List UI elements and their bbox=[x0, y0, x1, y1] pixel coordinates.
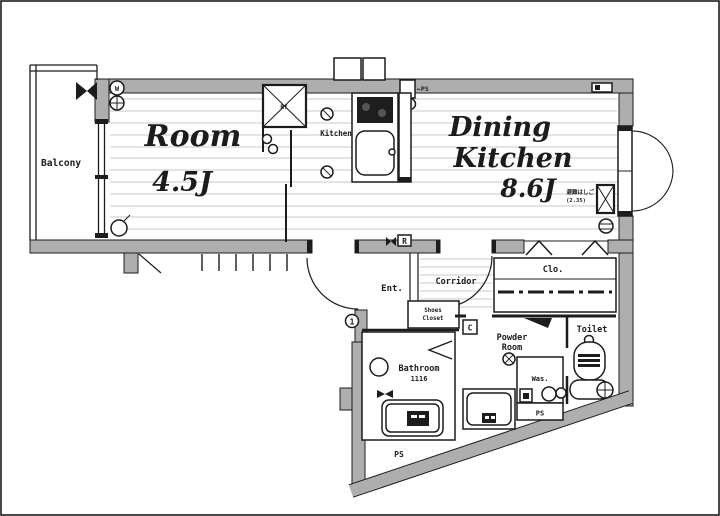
washer-label: Was. bbox=[532, 375, 549, 383]
escape-ladder-size: (2.35) bbox=[566, 198, 586, 204]
shoes-closet: Shoes Closet bbox=[408, 301, 459, 328]
dk-name-line1: Dining bbox=[448, 112, 551, 143]
left-upper-wall bbox=[95, 79, 109, 122]
entrance-label: Ent. bbox=[381, 284, 403, 294]
shower-icon bbox=[370, 358, 388, 376]
bathroom-size: 1116 bbox=[411, 375, 428, 383]
dk-size: 8.6J bbox=[499, 174, 557, 203]
bottom-wall-d bbox=[608, 240, 633, 253]
ps-top-label: ←PS bbox=[417, 85, 429, 93]
sink-icon bbox=[356, 131, 394, 175]
floor-plan: Balcony ←PS M W Rf bbox=[0, 0, 720, 516]
gas-tap-icon bbox=[269, 145, 278, 154]
outlet-icon bbox=[111, 220, 127, 236]
bathroom-label: Bathroom bbox=[399, 364, 440, 374]
c-mark: C bbox=[468, 324, 473, 333]
closet-label: Clo. bbox=[543, 265, 563, 275]
door-number: 1 bbox=[350, 318, 355, 327]
escape-ladder-label: 避難はしご bbox=[565, 188, 594, 196]
r-mark: R bbox=[402, 237, 407, 246]
toilet-label: Toilet bbox=[577, 324, 608, 335]
stove-icon bbox=[357, 97, 393, 123]
gas-tap-icon bbox=[263, 135, 272, 144]
ps-bathroom-label: PS bbox=[394, 450, 404, 459]
dk-name-line2: Kitchen bbox=[452, 143, 572, 174]
kitchen-wall-strip bbox=[399, 93, 411, 182]
right-wall-upper bbox=[619, 93, 633, 126]
gas-meter-icon bbox=[599, 219, 613, 233]
shoes-closet-line1: Shoes bbox=[424, 308, 442, 314]
fridge-label: Rf bbox=[280, 104, 288, 111]
bottom-wall-a bbox=[30, 240, 312, 253]
corridor-label: Corridor bbox=[436, 276, 477, 287]
balcony-label: Balcony bbox=[41, 158, 81, 169]
room-size: 4.5J bbox=[152, 167, 214, 198]
washer-drain-icon bbox=[542, 387, 556, 401]
bathroom: Bathroom 1116 PS bbox=[362, 332, 455, 459]
powder-room-line1: Powder bbox=[497, 333, 528, 343]
kitchen-label: Kitchen bbox=[320, 129, 352, 138]
bottom-wall-c bbox=[492, 240, 524, 253]
powder-room-line2: Room bbox=[502, 343, 522, 353]
porch-wall-stub bbox=[124, 253, 138, 273]
lower-left-wall-notch bbox=[340, 388, 352, 410]
faucet-icon bbox=[389, 149, 395, 155]
room-name: Room bbox=[144, 119, 242, 154]
top-wall bbox=[95, 79, 633, 93]
shoes-closet-line2: Closet bbox=[423, 316, 444, 322]
ps-washer-label: PS bbox=[536, 410, 544, 418]
floor-plan-drawing: Balcony ←PS M W Rf bbox=[0, 0, 720, 516]
